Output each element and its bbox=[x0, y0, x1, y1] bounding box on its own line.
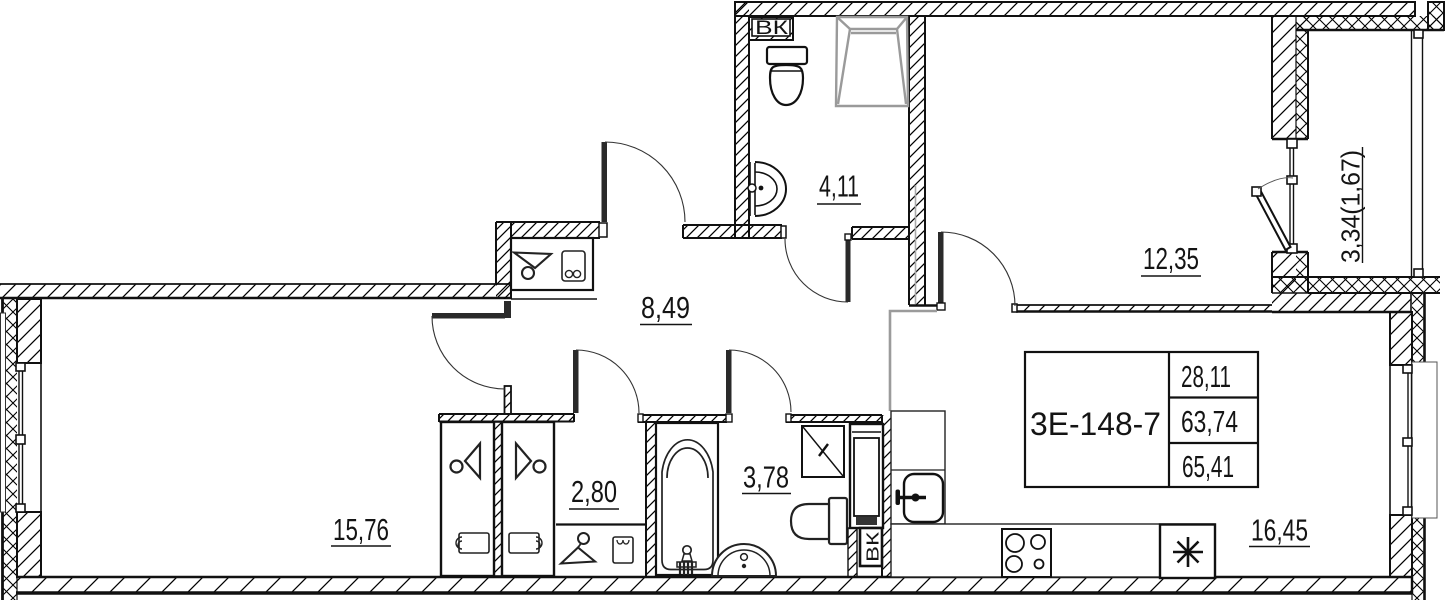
svg-text:ВК: ВК bbox=[863, 531, 883, 562]
svg-text:12,35: 12,35 bbox=[1143, 242, 1199, 276]
svg-text:15,76: 15,76 bbox=[333, 513, 389, 547]
svg-text:8,49: 8,49 bbox=[641, 291, 690, 325]
svg-text:16,45: 16,45 bbox=[1251, 514, 1308, 548]
svg-text:3,78: 3,78 bbox=[743, 461, 789, 495]
svg-text:4,11: 4,11 bbox=[819, 170, 859, 204]
svg-text:65,41: 65,41 bbox=[1182, 450, 1234, 484]
svg-text:28,11: 28,11 bbox=[1181, 360, 1231, 394]
svg-text:3Е-148-7: 3Е-148-7 bbox=[1030, 406, 1161, 442]
svg-text:2,80: 2,80 bbox=[571, 475, 617, 509]
svg-text:ВК: ВК bbox=[755, 18, 788, 39]
svg-text:3,34(1,67): 3,34(1,67) bbox=[1338, 150, 1366, 263]
svg-text:63,74: 63,74 bbox=[1181, 405, 1238, 439]
